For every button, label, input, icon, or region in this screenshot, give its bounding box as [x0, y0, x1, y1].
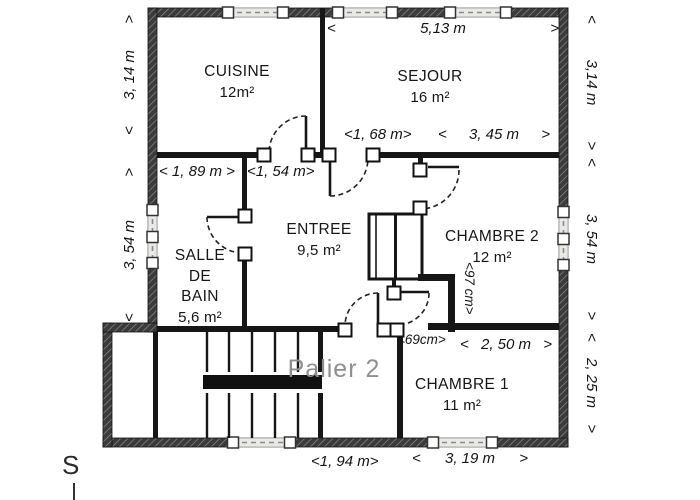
dim-text: 5,13 m [420, 20, 466, 37]
compass-south-label: S [62, 450, 79, 481]
room-label-salle-de-bain: SALLE DE BAIN 5,6 m² [157, 246, 243, 328]
door-arc-chambre1 [397, 293, 429, 325]
dim-left-upper: < 3, 14 m > [121, 15, 138, 135]
dim-bottom-right: < 3, 19 m > [412, 450, 528, 467]
dim-text: 2, 50 m [481, 336, 531, 353]
room-name-bain-3: BAIN [157, 287, 243, 308]
room-label-palier: Palier 2 [283, 355, 385, 384]
dim-chambre1-door: <69cm> [397, 332, 446, 347]
dim-arrow: < [460, 336, 469, 353]
dim-arrow: > [583, 424, 600, 433]
door-arc-palier [345, 293, 378, 326]
dim-arrow: > [583, 141, 600, 150]
room-label-cuisine: CUISINE 12m² [175, 61, 299, 103]
room-label-entree: ENTREE 9,5 m² [258, 219, 380, 261]
dim-chambre1-top: < 2, 50 m > [460, 336, 552, 353]
dim-sejour-width: < 3, 45 m > [438, 126, 550, 143]
room-label-chambre1: CHAMBRE 1 11 m² [400, 374, 524, 416]
staircase [200, 332, 325, 438]
dim-arrow: > [121, 168, 138, 177]
room-name-bain-1: SALLE [157, 246, 243, 267]
room-area-cuisine: 12m² [175, 82, 299, 103]
room-label-sejour: SEJOUR 16 m² [368, 66, 492, 108]
dim-left-lower: < 3, 54 m > [121, 168, 138, 322]
room-area-sejour: 16 m² [368, 87, 492, 108]
dim-top-sejour: < 5,13 m > [327, 20, 559, 37]
floor-plan: CUISINE 12m² SEJOUR 16 m² ENTREE 9,5 m² … [0, 0, 700, 500]
dim-text: 3,14 m [583, 60, 600, 106]
dim-text: 3, 14 m [121, 50, 138, 100]
room-area-entree: 9,5 m² [258, 240, 380, 261]
dim-chambre2-step: <97 cm> [462, 262, 477, 315]
dim-arrow: < [583, 333, 600, 342]
dim-bain-width: < 1, 89 m > [159, 163, 235, 180]
room-name-bain-2: DE [157, 267, 243, 288]
door-arc-cuisine [269, 116, 306, 153]
dim-arrow: < [121, 126, 138, 135]
dim-arrow: > [543, 336, 552, 353]
dim-arrow: > [519, 450, 528, 467]
dim-text: 3, 54 m [583, 214, 600, 264]
dim-right-middle: < 3, 54 m > [583, 158, 600, 320]
room-name-entree: ENTREE [258, 219, 380, 240]
dim-text: 3, 54 m [121, 220, 138, 270]
room-label-chambre2: CHAMBRE 2 12 m² [430, 226, 554, 268]
dim-arrow: < [583, 158, 600, 167]
dim-text: 3, 45 m [469, 126, 519, 143]
dim-text: 3, 19 m [445, 450, 495, 467]
dim-bottom-left: <1, 94 m> [311, 453, 379, 470]
dim-entree-width: <1, 54 m> [247, 163, 315, 180]
dim-arrow: < [583, 15, 600, 24]
dim-right-lower: < 2, 25 m > [583, 333, 600, 433]
room-area-bain: 5,6 m² [157, 308, 243, 329]
dim-arrow: > [121, 15, 138, 24]
dim-arrow: < [121, 313, 138, 322]
room-name-cuisine: CUISINE [175, 61, 299, 82]
dim-arrow: > [541, 126, 550, 143]
room-name-chambre1: CHAMBRE 1 [400, 374, 524, 395]
dim-arrow: > [583, 311, 600, 320]
door-arc-sejour [330, 158, 368, 196]
room-name-chambre2: CHAMBRE 2 [430, 226, 554, 247]
dim-arrow-left: < [327, 20, 336, 37]
room-area-chambre1: 11 m² [400, 395, 524, 416]
dim-right-upper: < 3,14 m > [583, 15, 600, 150]
room-name-sejour: SEJOUR [368, 66, 492, 87]
room-area-chambre2: 12 m² [430, 247, 554, 268]
dim-arrow-right: > [550, 20, 559, 37]
dim-arrow: < [438, 126, 447, 143]
dim-sejour-door: <1, 68 m> [344, 126, 412, 143]
dim-text: 2, 25 m [583, 358, 600, 408]
dim-arrow: < [412, 450, 421, 467]
